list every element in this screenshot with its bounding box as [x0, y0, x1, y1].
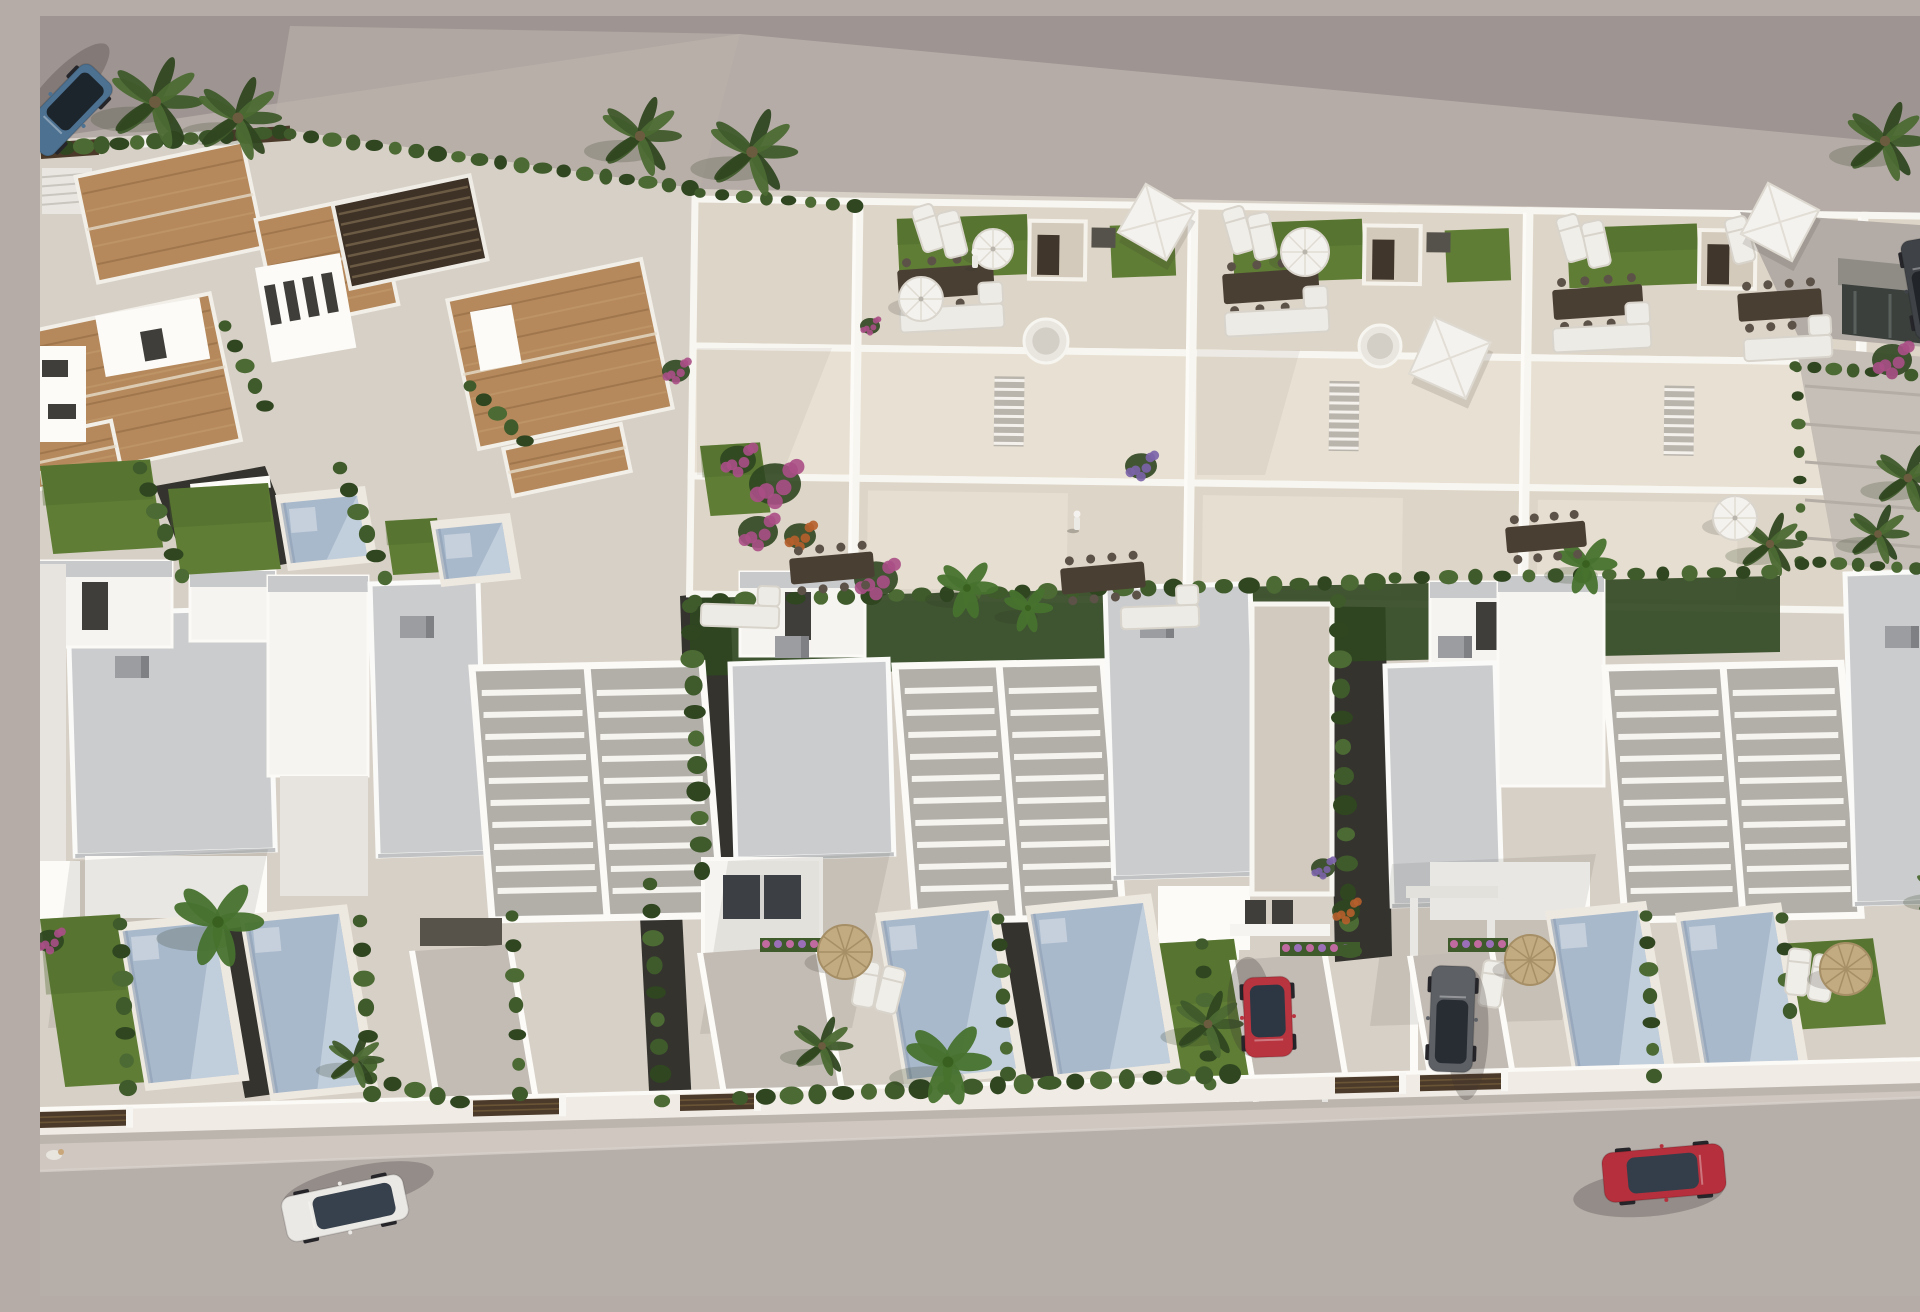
sunlit-wall — [40, 564, 66, 864]
roof-vent — [775, 636, 809, 658]
carport-lintel — [1230, 924, 1330, 936]
roof-vent — [400, 616, 434, 638]
roof-terrace — [1252, 604, 1332, 894]
terrace-stairs — [994, 376, 1025, 446]
roof-vent — [1426, 232, 1450, 252]
flower-planter — [1448, 938, 1508, 952]
wood-gate — [1335, 1076, 1401, 1094]
wall-post — [559, 1095, 566, 1116]
villa-window — [42, 360, 68, 377]
flat-roof-slab — [1845, 571, 1920, 904]
white-slat-pergola — [1605, 663, 1861, 920]
roof-lawn — [1444, 227, 1512, 283]
terrace-stairs — [1329, 381, 1360, 451]
flat-roof-slab — [730, 659, 894, 859]
roof-vent — [1438, 636, 1472, 658]
aerial-development-render — [40, 16, 1920, 1296]
terrace-stairs — [1664, 386, 1695, 456]
sunlit-wall — [280, 776, 368, 896]
stair-head-box — [1029, 221, 1086, 280]
wall-post — [1399, 1073, 1406, 1094]
round-daybed — [1024, 319, 1068, 363]
wall-post — [1501, 1070, 1508, 1091]
white-volume — [1498, 576, 1604, 786]
white-slat-pergola — [895, 662, 1123, 921]
wall-post — [126, 1107, 133, 1128]
white-volume — [268, 576, 368, 776]
roof-vent — [1091, 228, 1115, 248]
sun-lounger — [1785, 948, 1812, 996]
white-volume — [190, 571, 275, 641]
dark-window — [1245, 900, 1266, 926]
villa-window — [48, 404, 76, 419]
swimming-pool — [430, 513, 521, 587]
wood-gate — [473, 1098, 561, 1116]
stair-head-box — [1364, 225, 1421, 284]
dark-window — [82, 582, 108, 630]
wood-gate — [40, 1110, 128, 1128]
white-slat-pergola — [472, 663, 722, 920]
round-daybed — [1359, 325, 1401, 367]
garage-door — [420, 918, 502, 946]
roof-vent — [115, 656, 149, 678]
roof-vent — [1885, 626, 1919, 648]
dark-window — [1272, 900, 1293, 926]
